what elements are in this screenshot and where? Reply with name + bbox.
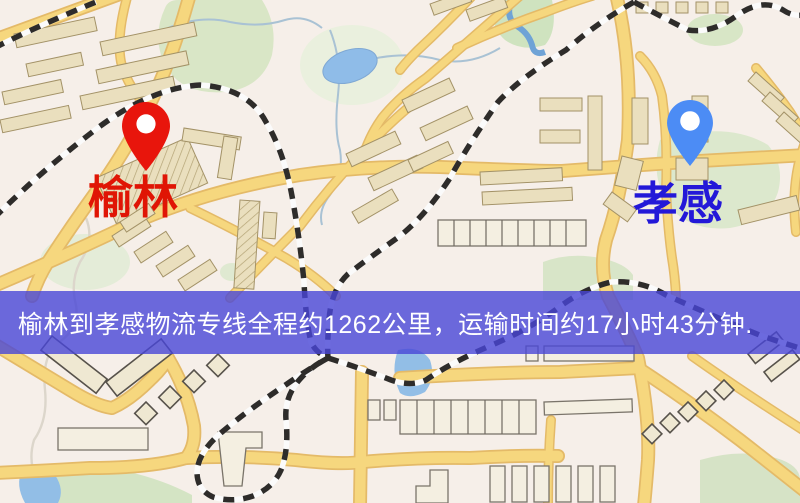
red-location-pin-icon xyxy=(122,102,170,171)
route-info-text: 榆林到孝感物流专线全程约1262公里，运输时间约17小时43分钟. xyxy=(0,305,753,341)
blue-location-pin-icon xyxy=(667,100,713,166)
map-background xyxy=(0,0,800,503)
route-info-banner: 榆林到孝感物流专线全程约1262公里，运输时间约17小时43分钟. xyxy=(0,291,800,354)
origin-city-label: 榆林 xyxy=(88,176,178,221)
destination-city-label: 孝感 xyxy=(633,182,723,227)
logistics-map: 榆林 孝感 榆林到孝感物流专线全程约1262公里，运输时间约17小时43分钟. xyxy=(0,0,800,503)
